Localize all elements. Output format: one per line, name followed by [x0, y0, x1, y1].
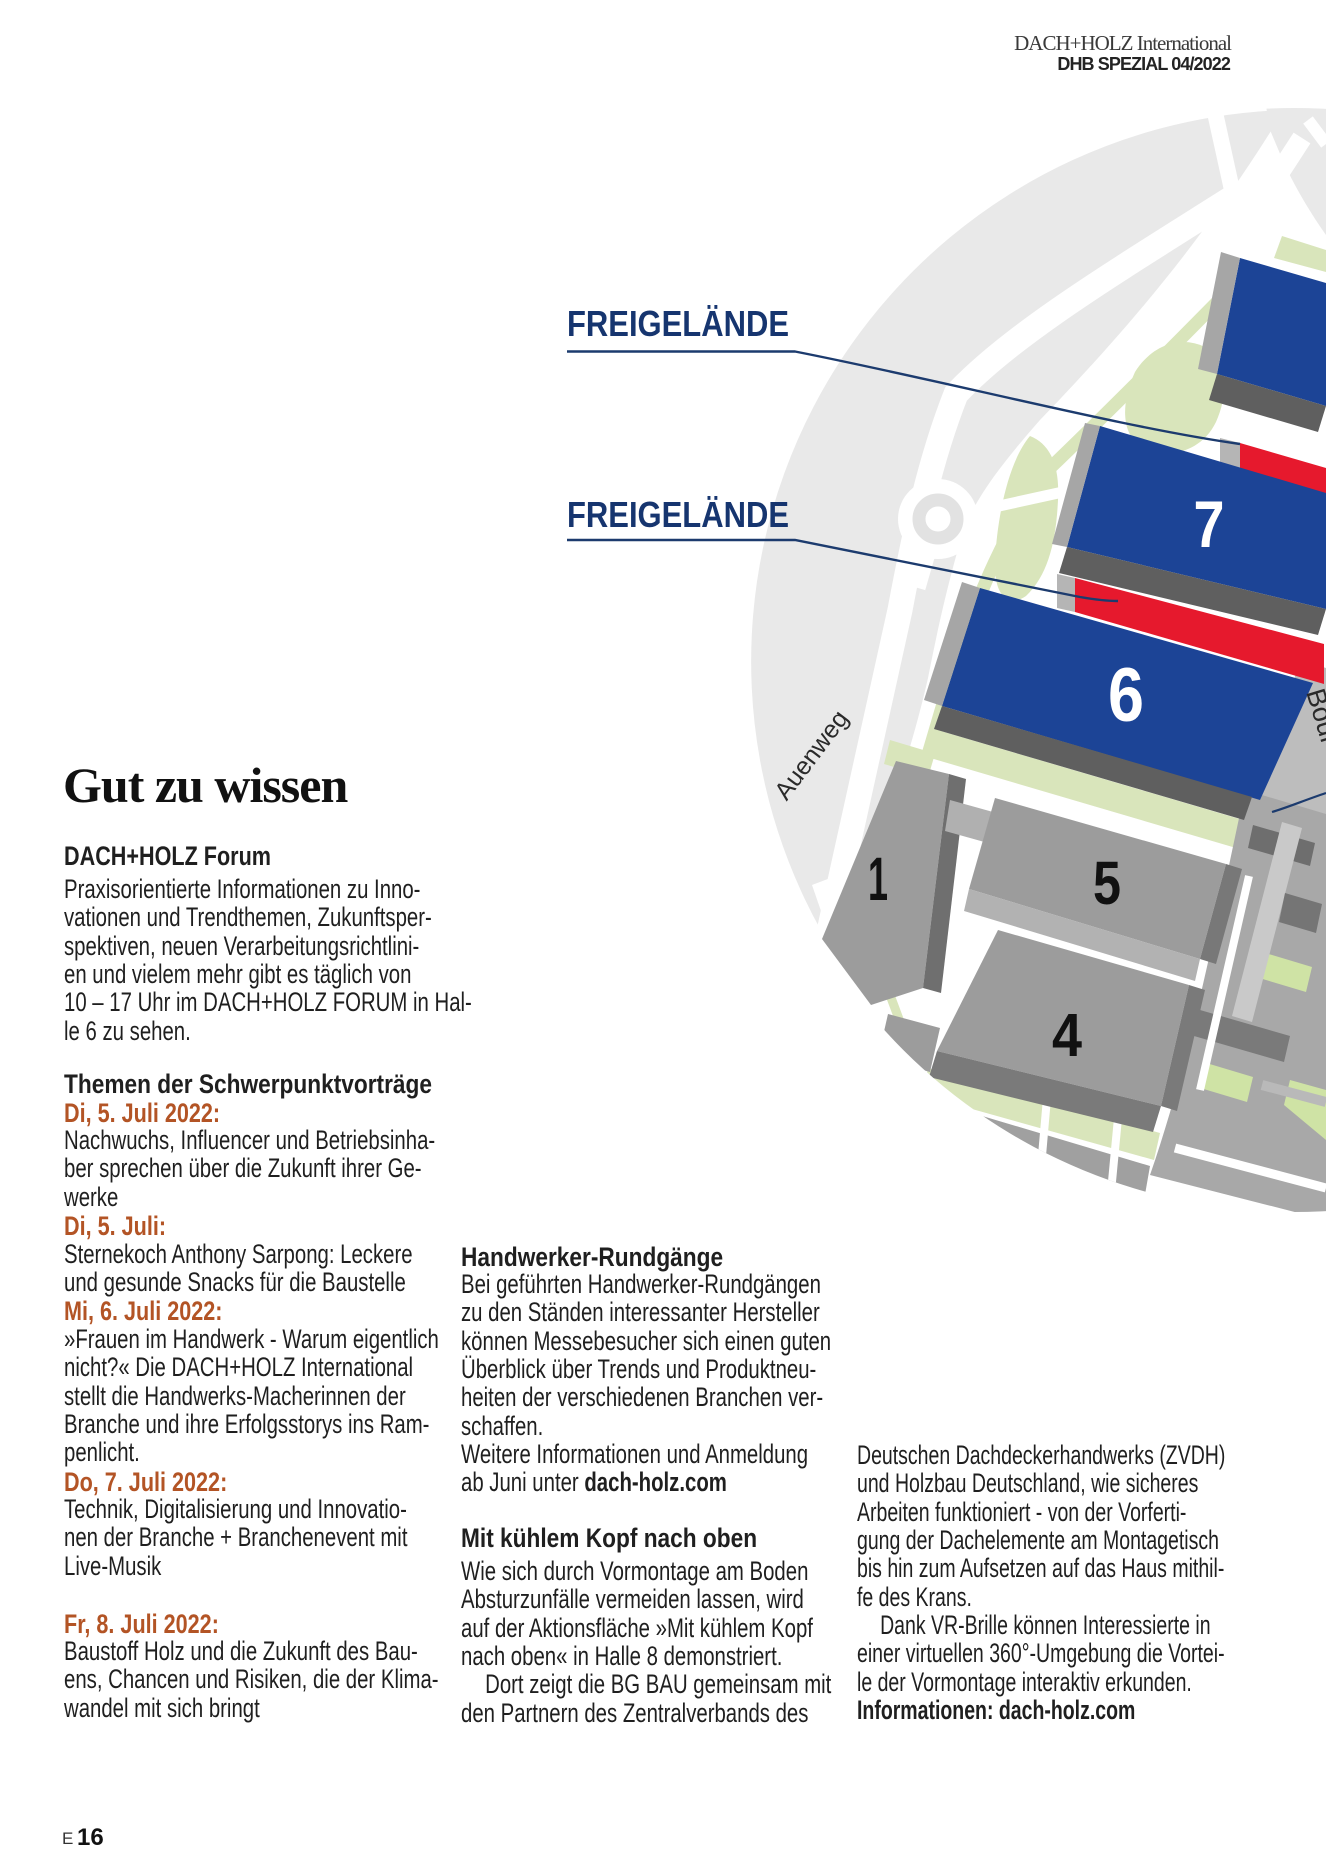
svg-text:FREIGELÄNDE: FREIGELÄNDE: [567, 303, 789, 344]
svg-text:6: 6: [1108, 653, 1144, 738]
svg-text:7: 7: [1194, 487, 1225, 561]
svg-text:4: 4: [1052, 1001, 1082, 1069]
svg-text:5: 5: [1093, 849, 1121, 917]
svg-text:1: 1: [868, 845, 888, 913]
svg-text:FREIGELÄNDE: FREIGELÄNDE: [567, 494, 789, 535]
